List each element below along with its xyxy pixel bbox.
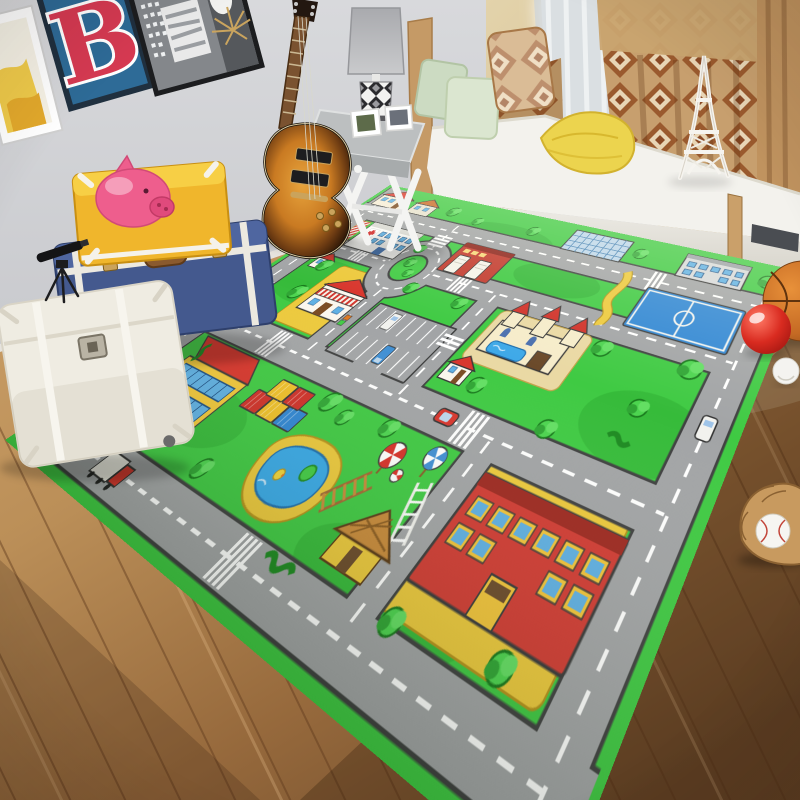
vignette [0,0,800,800]
room-foreground [0,0,800,800]
bedroom-scene: B [0,0,800,800]
